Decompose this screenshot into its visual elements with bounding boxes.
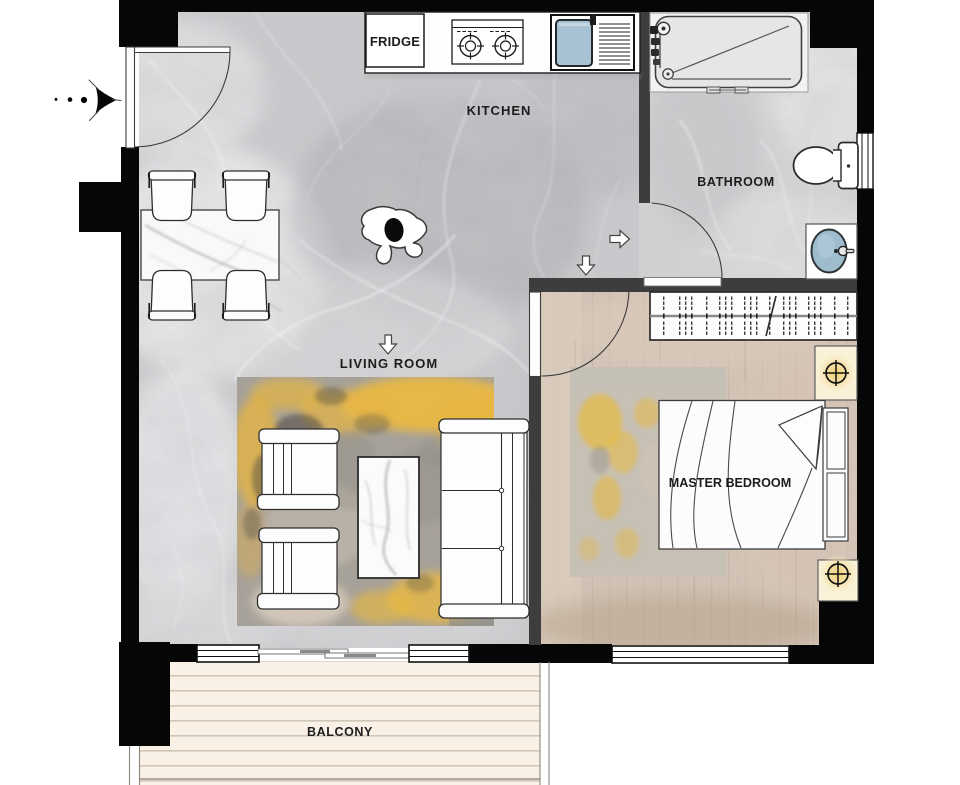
svg-text:FRIDGE: FRIDGE xyxy=(370,34,420,49)
svg-text:MASTER BEDROOM: MASTER BEDROOM xyxy=(669,476,791,490)
svg-text:BATHROOM: BATHROOM xyxy=(697,175,774,189)
svg-text:LIVING ROOM: LIVING ROOM xyxy=(340,356,438,371)
svg-text:BALCONY: BALCONY xyxy=(307,725,373,739)
svg-text:KITCHEN: KITCHEN xyxy=(467,103,532,118)
